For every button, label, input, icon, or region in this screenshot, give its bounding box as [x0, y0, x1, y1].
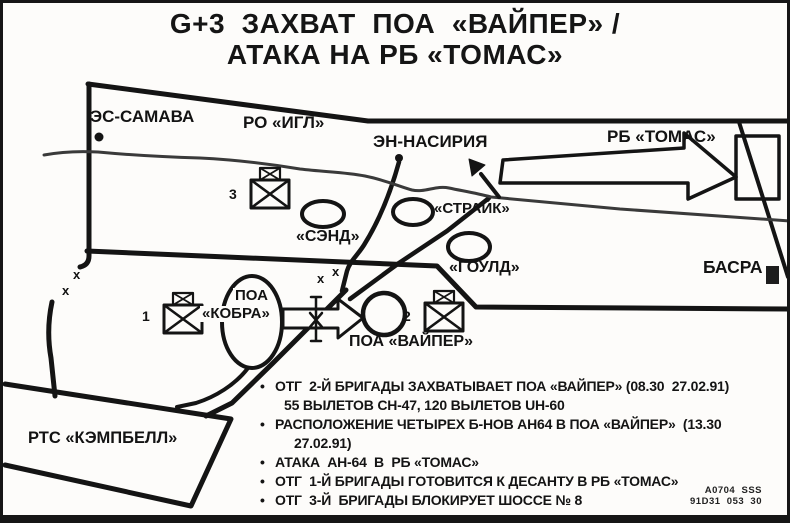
label-strike: «СТРАЙК» [434, 201, 510, 217]
label-poa-viper: ПОА «ВАЙПЕР» [349, 334, 473, 351]
brigade-unit-symbol-2 [425, 291, 463, 331]
boundary-x-mark: x [73, 267, 80, 282]
thomas-objective-box [736, 136, 779, 199]
label-gould: «ГОУЛД» [449, 260, 520, 277]
map-title-line1: G+3 ЗАХВАТ ПОА «ВАЙПЕР» / [0, 8, 790, 39]
viper-circle [363, 293, 405, 335]
label-ro-igl: РО «ИГЛ» [243, 114, 324, 132]
sand-ellipse [302, 201, 344, 227]
sw-boundary-line [49, 302, 55, 396]
recon-arrow-shaft [481, 174, 499, 197]
label-en-nasiriya: ЭН-НАСИРИЯ [373, 133, 487, 151]
stamp-line2: 91D31 053 30 [690, 497, 762, 508]
label-poa-cobra-top: ПОА [233, 288, 270, 304]
note-line: 27.02.91) [258, 434, 788, 453]
note-line: 55 ВЫЛЕТОВ CH-47, 120 ВЫЛЕТОВ UH-60 [258, 396, 788, 415]
boundary-x-mark: x [62, 283, 69, 298]
operations-map-page: G+3 ЗАХВАТ ПОА «ВАЙПЕР» / АТАКА НА РБ «Т… [0, 0, 790, 523]
note-line: ОТГ 2-Й БРИГАДЫ ЗАХВАТЫВАЕТ ПОА «ВАЙПЕР»… [258, 377, 788, 396]
map-title: G+3 ЗАХВАТ ПОА «ВАЙПЕР» / АТАКА НА РБ «Т… [0, 8, 790, 70]
brigade-unit-symbol-3 [251, 168, 289, 208]
print-code-stamp: A0704 SSS 91D31 053 30 [690, 486, 762, 507]
stamp-line1: A0704 SSS [690, 486, 762, 497]
basra-town-square [766, 266, 779, 284]
label-es-samava: ЭС-САМАВА [90, 108, 194, 126]
boundary-x-mark: x [317, 271, 324, 286]
boundary-x-mark: x [332, 264, 339, 279]
label-sand: «СЭНД» [296, 229, 359, 246]
unit-number-2: 2 [403, 309, 411, 324]
brigade-unit-symbol-1 [164, 293, 202, 333]
label-rts-campbell: РТС «КЭМПБЕЛЛ» [28, 430, 177, 447]
strike-ellipse [393, 199, 433, 225]
left-boundary-line [80, 84, 89, 267]
note-line: АТАКА AH-64 В РБ «ТОМАС» [258, 453, 788, 472]
label-basra: БАСРА [703, 258, 763, 276]
map-title-line2: АТАКА НА РБ «ТОМАС» [0, 39, 790, 70]
unit-number-1: 1 [142, 309, 150, 324]
nasiriyah-town-dot [395, 154, 403, 162]
unit-number-3: 3 [229, 187, 237, 202]
gould-ellipse [448, 233, 490, 261]
note-line: РАСПОЛОЖЕНИЕ ЧЕТЫРЕХ Б-НОВ AH64 В ПОА «В… [258, 415, 788, 434]
samawah-town-dot [95, 133, 104, 142]
label-cobra: «КОБРА» [200, 306, 272, 322]
label-rb-tomas: РБ «ТОМАС» [607, 128, 716, 146]
